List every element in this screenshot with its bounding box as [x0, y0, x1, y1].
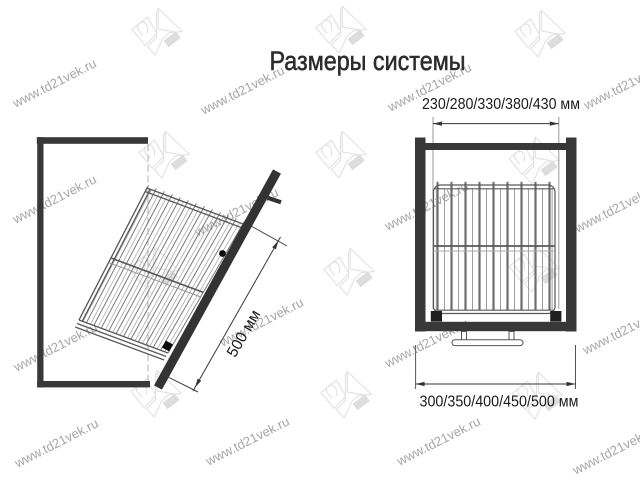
- svg-text:www.td21vek.ru: www.td21vek.ru: [202, 414, 291, 469]
- svg-text:www.td21vek.ru: www.td21vek.ru: [571, 181, 640, 236]
- svg-text:www.td21vek.ru: www.td21vek.ru: [10, 320, 99, 375]
- svg-text:Размеры системы: Размеры системы: [270, 46, 466, 76]
- svg-text:230/280/330/380/430 мм: 230/280/330/380/430 мм: [422, 96, 580, 113]
- svg-text:www.td21vek.ru: www.td21vek.ru: [9, 56, 98, 111]
- svg-text:www.td21vek.ru: www.td21vek.ru: [381, 179, 470, 234]
- svg-text:www.td21vek.ru: www.td21vek.ru: [569, 423, 640, 478]
- svg-text:300/350/400/450/500 мм: 300/350/400/450/500 мм: [420, 394, 579, 411]
- svg-text:www.td21vek.ru: www.td21vek.ru: [393, 414, 482, 469]
- svg-text:www.td21vek.ru: www.td21vek.ru: [11, 416, 100, 471]
- svg-text:www.td21vek.ru: www.td21vek.ru: [579, 303, 640, 358]
- svg-text:www.td21vek.ru: www.td21vek.ru: [580, 58, 640, 113]
- svg-text:www.td21vek.ru: www.td21vek.ru: [9, 172, 98, 227]
